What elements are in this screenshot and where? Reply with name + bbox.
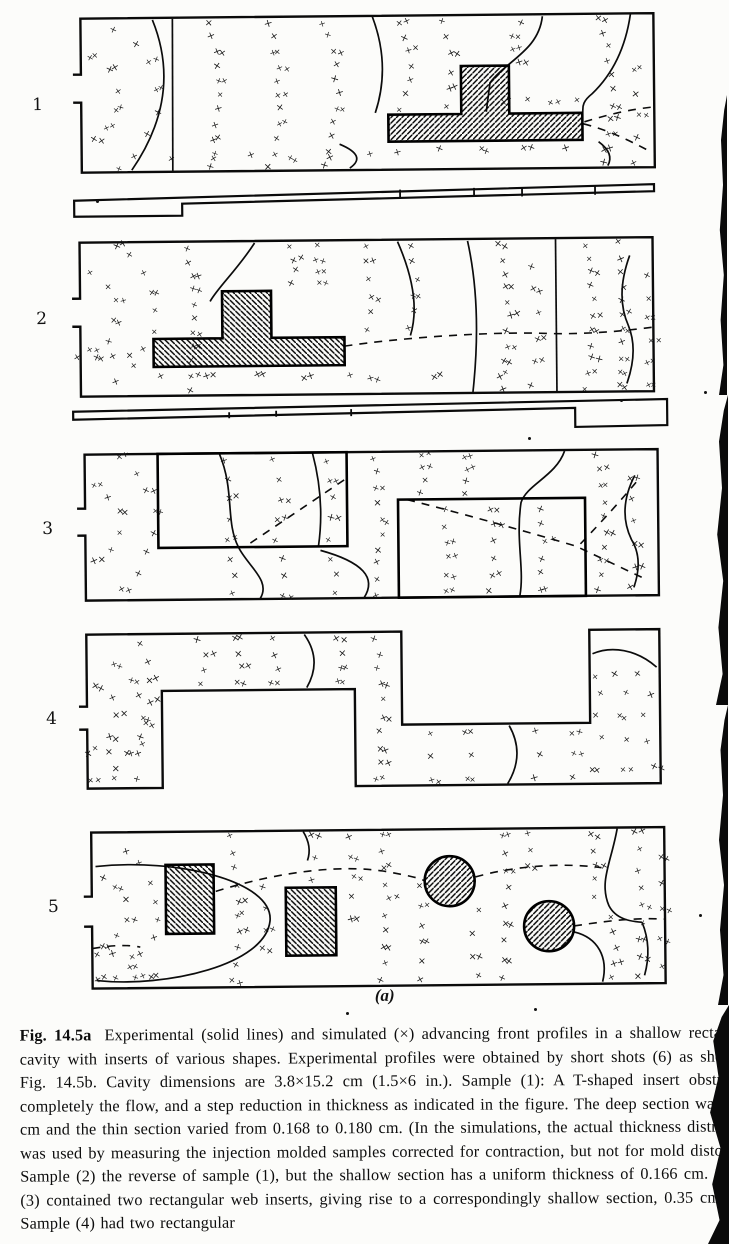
svg-text:×: × — [310, 852, 319, 863]
svg-text:×: × — [626, 493, 636, 505]
svg-text:×: × — [153, 914, 163, 925]
svg-text:×: × — [229, 862, 240, 874]
svg-text:×: × — [637, 883, 645, 894]
svg-text:×: × — [554, 97, 563, 108]
svg-text:×: × — [226, 555, 235, 566]
svg-text:×: × — [378, 772, 386, 782]
svg-text:×: × — [217, 90, 224, 99]
svg-text:×: × — [134, 856, 145, 868]
svg-text:×: × — [460, 474, 472, 487]
svg-text:×: × — [291, 155, 299, 165]
svg-text:×: × — [405, 74, 416, 86]
svg-text:×: × — [441, 32, 450, 43]
svg-text:×: × — [112, 930, 122, 941]
svg-text:×: × — [624, 326, 631, 335]
svg-text:×: × — [631, 89, 641, 101]
svg-text:×: × — [591, 326, 601, 338]
svg-text:×: × — [373, 573, 382, 584]
svg-text:×: × — [126, 350, 134, 361]
svg-text:×: × — [593, 267, 603, 279]
svg-text:×: × — [109, 24, 119, 36]
svg-text:×: × — [600, 14, 611, 27]
svg-text:×: × — [540, 332, 548, 343]
svg-text:×: × — [107, 692, 118, 704]
svg-text:×: × — [440, 521, 448, 532]
svg-text:×: × — [536, 567, 545, 578]
svg-text:×: × — [526, 261, 537, 273]
svg-text:×: × — [329, 72, 342, 86]
svg-text:×: × — [228, 847, 238, 859]
svg-text:×: × — [600, 543, 608, 553]
svg-text:×: × — [128, 951, 137, 962]
figure-caption-label: Fig. 14.5a — [20, 1025, 105, 1044]
svg-text:×: × — [257, 881, 268, 893]
svg-text:×: × — [434, 142, 445, 155]
svg-text:×: × — [414, 290, 422, 301]
svg-text:×: × — [534, 307, 544, 318]
svg-text:×: × — [373, 545, 382, 557]
svg-text:×: × — [368, 453, 378, 464]
thickness-profile-bar-1 — [72, 181, 660, 221]
svg-text:×: × — [96, 353, 106, 365]
svg-text:×: × — [415, 487, 426, 499]
svg-text:×: × — [474, 969, 483, 980]
svg-text:×: × — [281, 88, 290, 99]
svg-text:×: × — [148, 932, 159, 944]
svg-text:×: × — [272, 75, 282, 87]
svg-text:×: × — [602, 462, 611, 473]
svg-text:×: × — [345, 369, 355, 381]
svg-text:×: × — [340, 635, 349, 647]
svg-text:×: × — [537, 355, 546, 366]
svg-text:×: × — [97, 135, 107, 147]
svg-text:×: × — [596, 311, 605, 322]
svg-text:×: × — [142, 128, 153, 141]
svg-text:×: × — [536, 518, 547, 530]
svg-text:×: × — [656, 762, 667, 775]
svg-text:×: × — [371, 589, 382, 601]
svg-text:×: × — [607, 912, 614, 921]
svg-text:×: × — [204, 18, 213, 29]
svg-text:×: × — [504, 298, 511, 307]
svg-text:×: × — [227, 588, 236, 599]
svg-text:×: × — [448, 571, 459, 583]
svg-text:×: × — [286, 277, 297, 290]
svg-text:×: × — [418, 450, 425, 459]
svg-text:×: × — [611, 942, 622, 955]
svg-text:×: × — [497, 383, 509, 396]
svg-text:×: × — [498, 256, 507, 267]
svg-text:×: × — [381, 880, 389, 890]
svg-text:×: × — [262, 17, 274, 31]
svg-text:×: × — [531, 863, 540, 874]
svg-text:×: × — [391, 147, 402, 159]
svg-text:×: × — [380, 694, 387, 703]
svg-text:×: × — [245, 149, 256, 161]
svg-text:×: × — [291, 265, 300, 276]
svg-text:×: × — [662, 854, 672, 866]
svg-text:×: × — [642, 270, 652, 282]
svg-text:×: × — [529, 725, 540, 737]
svg-text:×: × — [468, 928, 477, 939]
svg-text:×: × — [481, 145, 491, 157]
svg-text:×: × — [605, 40, 613, 50]
svg-text:×: × — [665, 904, 674, 915]
svg-text:×: × — [341, 661, 350, 673]
svg-text:×: × — [151, 327, 158, 336]
svg-text:×: × — [155, 506, 165, 517]
svg-text:×: × — [638, 917, 647, 928]
svg-text:×: × — [642, 735, 653, 747]
svg-text:×: × — [645, 294, 652, 303]
svg-text:×: × — [156, 371, 166, 383]
svg-text:×: × — [257, 368, 268, 381]
figure-caption: Fig. 14.5aExperimental (solid lines) and… — [20, 1020, 729, 1235]
svg-text:×: × — [643, 954, 653, 966]
svg-text:×: × — [268, 454, 277, 465]
svg-text:×: × — [326, 130, 337, 143]
svg-text:×: × — [573, 95, 581, 105]
svg-text:×: × — [279, 570, 289, 583]
svg-text:×: × — [269, 31, 278, 43]
svg-text:×: × — [324, 535, 332, 545]
svg-text:×: × — [504, 882, 513, 894]
svg-text:×: × — [134, 949, 144, 961]
svg-text:×: × — [194, 284, 204, 296]
svg-text:×: × — [475, 904, 482, 914]
svg-text:×: × — [369, 633, 380, 645]
svg-text:×: × — [147, 877, 155, 888]
svg-text:×: × — [136, 639, 145, 650]
svg-text:×: × — [241, 895, 250, 907]
svg-text:×: × — [111, 734, 120, 746]
svg-text:×: × — [494, 568, 503, 579]
svg-text:×: × — [621, 687, 630, 698]
svg-text:×: × — [190, 312, 199, 324]
svg-text:×: × — [426, 751, 435, 763]
svg-text:×: × — [619, 282, 628, 294]
svg-text:×: × — [535, 503, 547, 516]
svg-text:×: × — [333, 86, 345, 100]
svg-text:×: × — [352, 853, 361, 864]
svg-text:×: × — [460, 489, 469, 500]
svg-text:×: × — [197, 679, 204, 688]
svg-text:×: × — [607, 972, 616, 982]
svg-text:×: × — [422, 936, 432, 948]
svg-text:×: × — [597, 569, 605, 580]
svg-text:×: × — [371, 557, 381, 569]
svg-text:×: × — [375, 649, 386, 661]
svg-text:×: × — [376, 845, 387, 857]
svg-text:×: × — [296, 253, 306, 264]
svg-text:×: × — [91, 743, 99, 753]
svg-text:×: × — [121, 507, 129, 518]
svg-text:×: × — [86, 775, 94, 786]
svg-text:×: × — [274, 89, 282, 100]
svg-text:×: × — [182, 243, 192, 255]
svg-text:×: × — [592, 765, 601, 776]
thickness-profile-bar-2 — [71, 397, 671, 437]
svg-text:×: × — [586, 254, 592, 263]
svg-text:×: × — [625, 581, 636, 594]
svg-text:×: × — [372, 466, 383, 478]
figure-sub-label: (a) — [355, 985, 415, 1006]
svg-text:×: × — [362, 241, 371, 251]
svg-text:×: × — [642, 110, 650, 120]
svg-text:×: × — [151, 53, 161, 65]
panel-number-2: 2 — [36, 309, 47, 329]
svg-text:×: × — [636, 62, 643, 71]
svg-text:×: × — [321, 267, 328, 276]
svg-text:×: × — [380, 957, 390, 968]
scan-speck — [699, 914, 702, 917]
svg-text:×: × — [274, 677, 281, 687]
svg-text:×: × — [275, 474, 284, 485]
svg-text:×: × — [117, 237, 128, 250]
svg-text:×: × — [608, 83, 617, 95]
svg-text:×: × — [133, 689, 143, 702]
svg-text:×: × — [507, 282, 515, 293]
svg-text:×: × — [413, 275, 421, 285]
svg-text:×: × — [596, 27, 608, 40]
svg-text:×: × — [167, 154, 176, 165]
svg-text:×: × — [593, 353, 605, 366]
svg-text:×: × — [372, 374, 383, 386]
scan-speck — [346, 1012, 349, 1015]
svg-text:×: × — [243, 660, 253, 672]
svg-text:×: × — [212, 102, 224, 115]
svg-text:×: × — [99, 972, 108, 983]
svg-text:×: × — [131, 773, 142, 785]
svg-text:×: × — [231, 960, 240, 971]
svg-text:×: × — [328, 492, 337, 503]
svg-text:×: × — [230, 570, 239, 582]
svg-text:×: × — [98, 872, 109, 885]
svg-text:×: × — [147, 720, 157, 732]
svg-text:×: × — [102, 492, 113, 504]
svg-text:×: × — [401, 88, 410, 100]
svg-text:×: × — [500, 325, 512, 338]
svg-text:×: × — [313, 830, 325, 843]
svg-text:×: × — [94, 774, 102, 785]
svg-text:×: × — [348, 892, 356, 902]
svg-text:×: × — [209, 370, 217, 381]
svg-text:×: × — [383, 942, 393, 955]
svg-text:×: × — [537, 554, 548, 566]
svg-text:×: × — [591, 874, 598, 884]
svg-text:×: × — [225, 514, 234, 524]
svg-text:×: × — [424, 880, 431, 890]
svg-text:×: × — [199, 665, 209, 676]
svg-text:×: × — [106, 544, 116, 555]
svg-text:×: × — [118, 295, 128, 306]
svg-text:×: × — [331, 588, 338, 598]
svg-text:×: × — [270, 534, 280, 546]
svg-text:×: × — [599, 860, 609, 873]
svg-text:×: × — [351, 913, 361, 925]
svg-text:×: × — [424, 900, 431, 910]
svg-text:×: × — [624, 306, 634, 318]
svg-text:×: × — [602, 54, 612, 66]
scan-speck — [528, 437, 531, 440]
svg-text:×: × — [108, 351, 118, 363]
figure-14-5a: ××××××××××××××××××××××××××××××××××××××××… — [0, 0, 729, 1023]
svg-text:×: × — [286, 591, 295, 602]
svg-text:×: × — [504, 956, 514, 968]
svg-text:×: × — [602, 480, 609, 489]
svg-text:×: × — [233, 881, 241, 892]
figure-panel-3: ××××××××××××××××××××××××××××××××××××××××… — [75, 447, 667, 611]
svg-text:×: × — [209, 120, 220, 132]
svg-text:×: × — [108, 121, 116, 131]
svg-text:×: × — [322, 456, 332, 467]
svg-text:×: × — [424, 460, 434, 472]
scan-speck — [620, 399, 623, 402]
panel-number-3: 3 — [42, 519, 53, 539]
svg-text:×: × — [591, 711, 599, 722]
svg-text:×: × — [231, 532, 239, 542]
svg-text:×: × — [205, 30, 217, 43]
svg-text:×: × — [120, 846, 131, 858]
svg-text:×: × — [607, 69, 616, 80]
svg-text:×: × — [629, 515, 639, 526]
svg-text:×: × — [365, 274, 373, 284]
svg-text:×: × — [328, 116, 338, 128]
svg-text:×: × — [526, 380, 537, 392]
svg-text:×: × — [384, 829, 393, 840]
svg-text:×: × — [103, 336, 114, 348]
svg-text:×: × — [285, 496, 293, 506]
svg-text:×: × — [412, 43, 419, 53]
svg-text:×: × — [612, 128, 620, 138]
svg-text:×: × — [435, 369, 444, 381]
svg-text:×: × — [599, 510, 609, 521]
svg-text:×: × — [283, 63, 291, 74]
svg-text:×: × — [510, 342, 518, 352]
svg-text:×: × — [527, 845, 534, 854]
svg-text:×: × — [632, 472, 643, 484]
svg-text:×: × — [138, 343, 147, 355]
svg-text:×: × — [232, 491, 240, 502]
svg-text:×: × — [442, 101, 450, 112]
svg-text:×: × — [183, 257, 193, 270]
svg-text:×: × — [384, 860, 393, 871]
figure-panel-4: ××××××××××××××××××××××××××××××××××××××××… — [76, 627, 669, 799]
svg-text:×: × — [331, 476, 340, 487]
svg-text:×: × — [142, 546, 152, 558]
svg-text:×: × — [488, 534, 499, 547]
svg-text:×: × — [322, 28, 333, 40]
svg-text:×: × — [494, 370, 505, 383]
svg-text:×: × — [122, 894, 131, 905]
svg-text:×: × — [409, 304, 419, 316]
svg-text:×: × — [134, 568, 144, 580]
svg-text:×: × — [372, 662, 382, 673]
svg-text:×: × — [591, 892, 597, 901]
svg-text:×: × — [559, 142, 571, 155]
svg-text:×: × — [234, 649, 243, 661]
svg-text:×: × — [104, 282, 112, 292]
svg-text:×: × — [650, 380, 657, 389]
svg-text:×: × — [116, 528, 123, 537]
svg-text:×: × — [373, 295, 382, 306]
svg-text:×: × — [417, 921, 427, 933]
svg-text:×: × — [521, 57, 531, 70]
svg-text:×: × — [467, 750, 476, 761]
svg-text:×: × — [500, 241, 510, 253]
figure-panel-numbers: 12345 — [0, 0, 724, 3]
svg-text:×: × — [191, 633, 204, 647]
svg-text:×: × — [635, 844, 644, 854]
svg-text:×: × — [616, 335, 628, 348]
svg-text:×: × — [223, 535, 231, 545]
svg-text:×: × — [633, 669, 642, 680]
svg-text:×: × — [623, 354, 631, 364]
svg-text:×: × — [619, 765, 627, 775]
svg-text:×: × — [591, 672, 598, 682]
svg-text:×: × — [407, 255, 417, 268]
svg-text:×: × — [270, 148, 279, 160]
svg-text:×: × — [97, 554, 106, 565]
svg-text:×: × — [238, 908, 245, 917]
svg-text:×: × — [190, 299, 199, 310]
panel-number-4: 4 — [46, 709, 57, 729]
svg-text:×: × — [379, 530, 386, 539]
svg-text:×: × — [385, 714, 393, 725]
svg-text:×: × — [435, 777, 443, 787]
svg-text:×: × — [648, 336, 655, 345]
scan-speck — [534, 1008, 537, 1011]
svg-text:×: × — [273, 46, 280, 56]
svg-text:×: × — [500, 847, 511, 860]
svg-text:×: × — [306, 874, 317, 886]
svg-text:×: × — [493, 506, 501, 516]
svg-text:×: × — [614, 253, 626, 266]
svg-text:×: × — [112, 295, 119, 304]
svg-text:×: × — [130, 360, 138, 371]
scanned-page: { "colors": {"paper": "#fcfcfa", "ink": … — [0, 0, 729, 1244]
svg-text:×: × — [609, 668, 619, 681]
svg-text:×: × — [633, 864, 644, 876]
svg-text:×: × — [269, 649, 280, 662]
svg-text:×: × — [448, 585, 457, 596]
svg-text:×: × — [452, 48, 462, 60]
svg-text:×: × — [365, 148, 375, 159]
svg-text:×: × — [616, 266, 625, 278]
svg-text:×: × — [331, 58, 341, 70]
svg-text:×: × — [314, 239, 322, 250]
svg-text:×: × — [275, 102, 285, 114]
svg-text:×: × — [446, 68, 456, 79]
svg-text:×: × — [589, 846, 597, 857]
figure-panel-2: ××××××××××××××××××××××××××××××××××××××××… — [69, 235, 662, 407]
svg-text:×: × — [440, 504, 451, 516]
svg-text:×: × — [110, 61, 120, 74]
svg-text:×: × — [603, 556, 611, 567]
svg-text:×: × — [399, 32, 410, 45]
svg-text:×: × — [515, 32, 522, 41]
svg-text:×: × — [151, 305, 159, 315]
svg-text:×: × — [266, 946, 274, 957]
svg-text:×: × — [569, 748, 578, 759]
svg-text:×: × — [277, 552, 289, 565]
figure-panels: ××××××××××××××××××××××××××××××××××××××××… — [0, 0, 724, 3]
svg-text:×: × — [212, 60, 222, 72]
svg-text:×: × — [607, 926, 619, 939]
svg-text:×: × — [392, 890, 401, 901]
svg-text:×: × — [649, 313, 656, 323]
svg-text:×: × — [142, 656, 153, 669]
